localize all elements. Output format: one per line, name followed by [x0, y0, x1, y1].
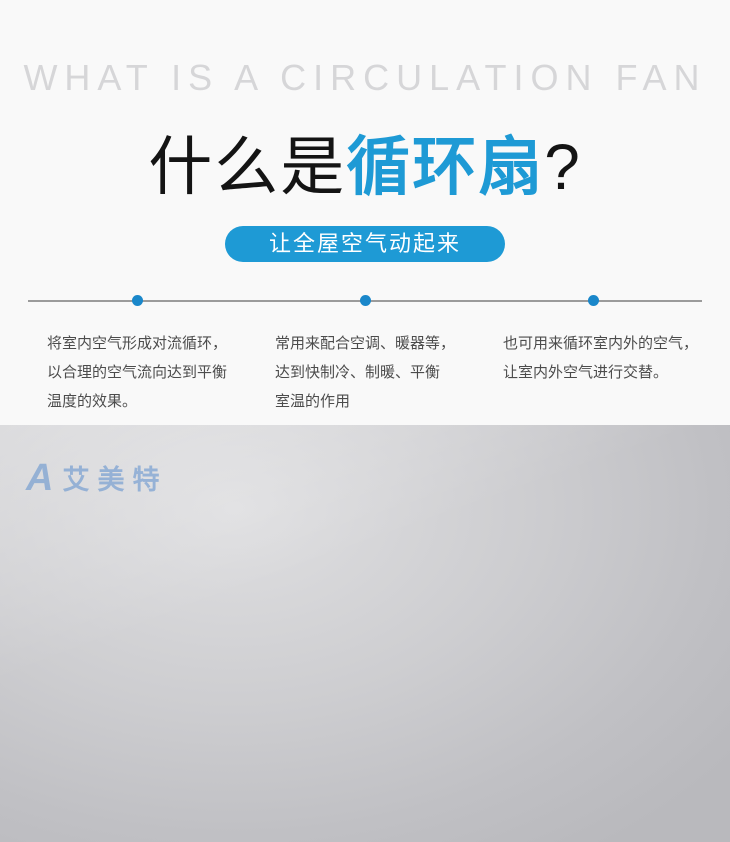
main-title: 什么是循环扇? [0, 116, 730, 208]
page-root: { "hero": { "title_en": "WHAT IS A CIRCU… [0, 0, 730, 842]
divider-dot [588, 295, 599, 306]
brand-watermark: A 艾美特 [26, 459, 167, 497]
main-title-question-mark: ? [544, 131, 582, 203]
feature-text-indoor-circulation: 将室内空气形成对流循环， 以合理的空气流向达到平衡 温度的效果。 [47, 329, 275, 416]
illustration-section: A 艾美特 [0, 425, 730, 842]
main-title-prefix: 什么是 [148, 131, 346, 203]
hero-section: WHAT IS A CIRCULATION FAN 什么是循环扇? 让全屋空气动… [0, 0, 730, 425]
divider-dot [360, 295, 371, 306]
divider-dot [132, 295, 143, 306]
feature-text-indoor-outdoor: 也可用来循环室内外的空气， 让室内外空气进行交替。 [503, 329, 730, 387]
feature-text-ac-heater: 常用来配合空调、暖器等， 达到快制冷、制暖、平衡 室温的作用 [275, 329, 503, 416]
tagline-badge: 让全屋空气动起来 [225, 226, 505, 262]
english-title: WHAT IS A CIRCULATION FAN [0, 57, 730, 99]
brand-name: 艾美特 [62, 459, 167, 494]
brand-logo-icon: A [26, 459, 53, 497]
main-title-highlight: 循环扇 [346, 131, 544, 203]
